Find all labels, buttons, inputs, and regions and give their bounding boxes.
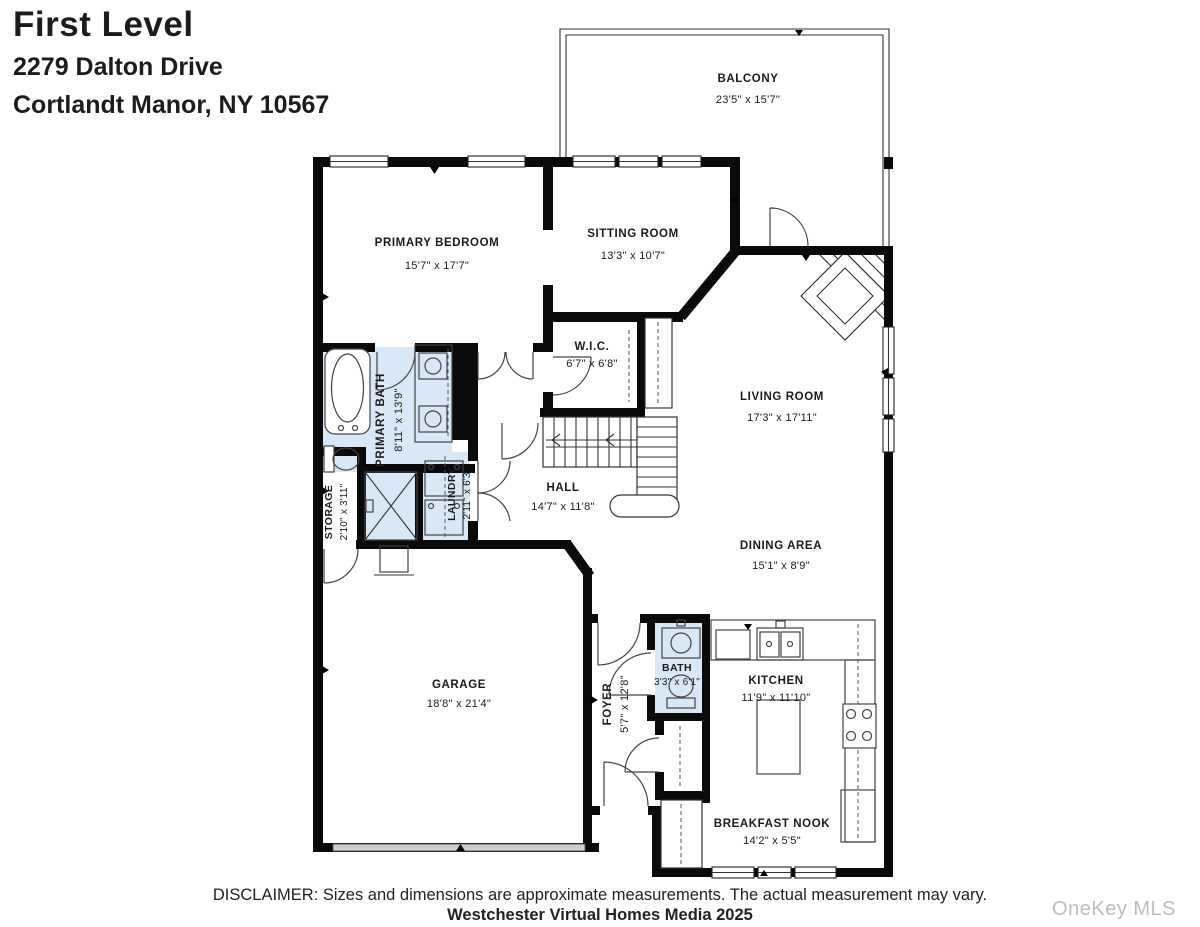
room-name: FOYER <box>602 683 614 726</box>
room-dims: 14'7" x 11'8" <box>531 501 594 513</box>
room-dims: 18'8" x 21'4" <box>427 698 491 710</box>
room-dims: 11'9" x 11'10" <box>741 692 810 704</box>
kitchen-counter <box>711 620 875 660</box>
kitchen-fixtures <box>711 620 876 842</box>
room-name: BATH <box>662 662 692 674</box>
balcony-outline <box>560 29 889 246</box>
room-name: BREAKFAST NOOK <box>714 818 830 830</box>
room-name: LAUNDRY <box>446 467 458 521</box>
room-dims: 23'5" x 15'7" <box>716 94 780 106</box>
room-label-sitting-room: SITTING ROOM 13'3" x 10'7" <box>587 228 679 262</box>
water-heater-icon <box>374 546 414 575</box>
room-name: DINING AREA <box>740 540 822 552</box>
room-label-storage: STORAGE 2'10" x 3'11" <box>323 483 350 540</box>
room-label-dining-area: DINING AREA 15'1" x 8'9" <box>740 540 822 572</box>
room-label-kitchen: KITCHEN 11'9" x 11'10" <box>741 675 810 704</box>
fireplace-icon <box>801 252 889 340</box>
room-name: SITTING ROOM <box>587 228 679 240</box>
room-dims: 5'7" x 12'8" <box>619 675 631 733</box>
room-label-breakfast-nook: BREAKFAST NOOK 14'2" x 5'5" <box>714 818 830 847</box>
room-label-primary-bedroom: PRIMARY BEDROOM 15'7" x 17'7" <box>375 237 500 272</box>
room-name: W.I.C. <box>575 341 610 353</box>
media-credit: Westchester Virtual Homes Media 2025 <box>0 906 1200 925</box>
room-name: KITCHEN <box>748 675 803 687</box>
room-dims: 14'2" x 5'5" <box>743 835 801 847</box>
disclaimer-text: DISCLAIMER: Sizes and dimensions are app… <box>0 886 1200 905</box>
room-dims: 15'7" x 17'7" <box>405 260 469 272</box>
room-label-hall: HALL 14'7" x 11'8" <box>531 482 594 513</box>
mls-watermark: OneKey MLS <box>1052 898 1176 921</box>
room-dims: 13'3" x 10'7" <box>601 250 665 262</box>
room-name: PRIMARY BATH <box>375 373 387 467</box>
room-dims: 6'7" x 6'8" <box>566 358 617 370</box>
room-name: STORAGE <box>323 485 335 540</box>
room-dims: 3'3" x 6'1" <box>654 677 700 688</box>
floor-plan: BALCONY 23'5" x 15'7" PRIMARY BEDROOM 15… <box>0 0 1200 927</box>
room-label-living-room: LIVING ROOM 17'3" x 17'11" <box>740 391 824 424</box>
bathtub-icon <box>325 349 370 434</box>
room-label-balcony: BALCONY 23'5" x 15'7" <box>716 73 780 106</box>
room-label-garage: GARAGE 18'8" x 21'4" <box>427 679 491 710</box>
stove-icon <box>843 704 876 748</box>
room-dims: 17'3" x 17'11" <box>747 412 817 424</box>
kitchen-side-counter <box>845 660 875 842</box>
room-label-wic: W.I.C. 6'7" x 6'8" <box>566 341 617 370</box>
room-name: BALCONY <box>717 73 778 85</box>
room-dims: 2'10" x 3'11" <box>339 483 350 540</box>
room-name: HALL <box>546 482 579 494</box>
room-label-foyer: FOYER 5'7" x 12'8" <box>602 675 631 733</box>
kitchen-island <box>757 700 800 774</box>
kitchen-sink-icon <box>757 621 803 660</box>
dishwasher-icon <box>716 630 750 659</box>
room-name: PRIMARY BEDROOM <box>375 237 500 249</box>
room-dims: 2'11" x 6'3" <box>462 468 473 519</box>
room-dims: 8'11" x 13'9" <box>393 388 405 451</box>
room-dims: 15'1" x 8'9" <box>752 560 810 572</box>
room-name: GARAGE <box>432 679 486 691</box>
room-name: LIVING ROOM <box>740 391 824 403</box>
